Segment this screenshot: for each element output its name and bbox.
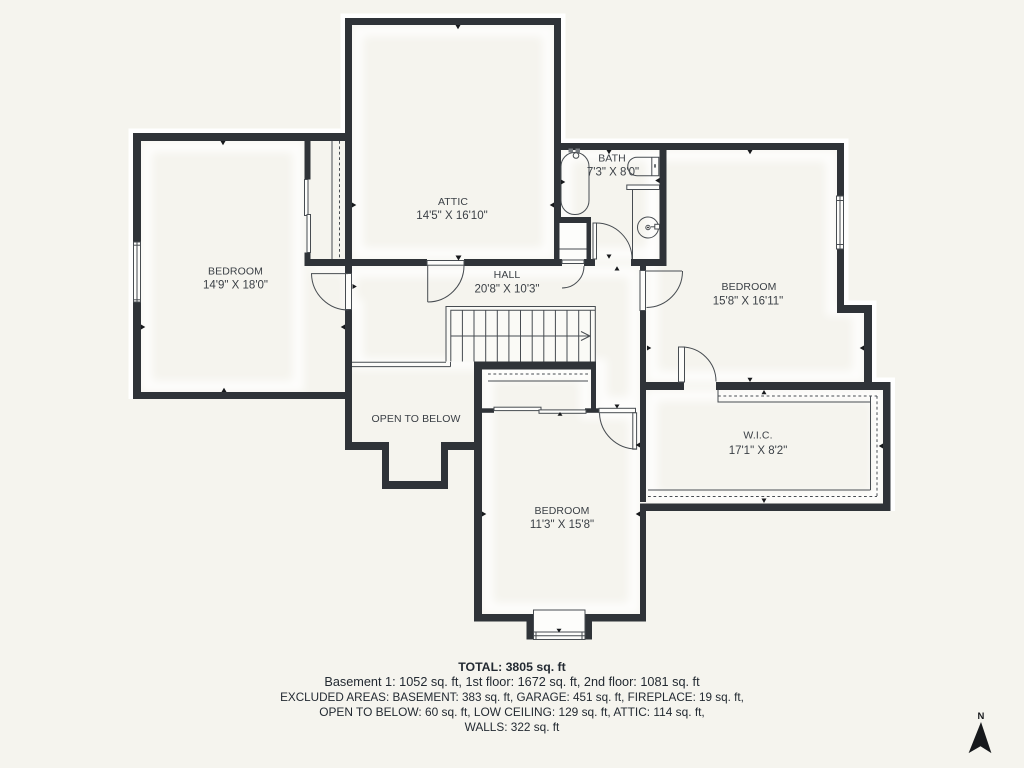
svg-text:20'8" X 10'3": 20'8" X 10'3" [475, 284, 540, 296]
svg-text:W.I.C.: W.I.C. [743, 430, 772, 442]
svg-text:OPEN TO BELOW: OPEN TO BELOW [371, 413, 460, 425]
svg-text:11'3" X 15'8": 11'3" X 15'8" [530, 519, 594, 531]
svg-text:14'9" X 18'0": 14'9" X 18'0" [203, 280, 268, 292]
svg-text:BEDROOM: BEDROOM [722, 281, 777, 293]
svg-text:OPEN TO BELOW: 60 sq. ft, LOW: OPEN TO BELOW: 60 sq. ft, LOW CEILING: 1… [319, 705, 704, 719]
svg-text:TOTAL: 3805 sq. ft: TOTAL: 3805 sq. ft [458, 660, 566, 674]
svg-text:ATTIC: ATTIC [438, 196, 468, 208]
svg-text:BEDROOM: BEDROOM [535, 505, 590, 517]
svg-text:HALL: HALL [494, 269, 521, 281]
svg-text:17'1" X 8'2": 17'1" X 8'2" [729, 445, 788, 457]
svg-text:WALLS: 322 sq. ft: WALLS: 322 sq. ft [465, 720, 560, 734]
svg-text:BATH: BATH [598, 153, 626, 165]
svg-text:EXCLUDED AREAS: BASEMENT: 383: EXCLUDED AREAS: BASEMENT: 383 sq. ft, GA… [280, 691, 744, 704]
svg-text:7'3" X 8'0": 7'3" X 8'0" [587, 167, 639, 179]
svg-text:Basement 1: 1052 sq. ft, 1st f: Basement 1: 1052 sq. ft, 1st floor: 1672… [324, 675, 700, 689]
svg-text:BEDROOM: BEDROOM [208, 266, 263, 278]
svg-text:14'5" X 16'10": 14'5" X 16'10" [416, 210, 487, 222]
svg-text:N: N [978, 711, 985, 722]
svg-text:15'8" X 16'11": 15'8" X 16'11" [713, 296, 784, 308]
